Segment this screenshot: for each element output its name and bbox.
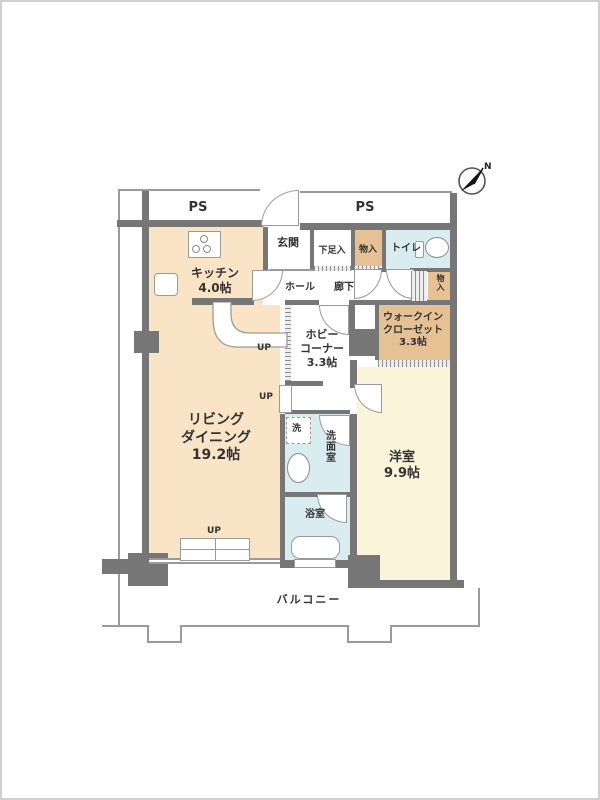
wall-ps-divider [142,191,149,227]
step-curve [205,302,289,352]
bifold-door-storage-side [411,271,427,301]
walk-in-closet-label: ウォークイン クローゼット 3.3帖 [383,312,443,350]
ps-right-label: PS [356,200,375,216]
living-dining-label: リビング ダイニング 19.2帖 [181,412,251,465]
wall-shoe-storage-divider [351,229,355,270]
ld-size: 19.2帖 [192,447,241,463]
outline-top-left [118,189,260,191]
ld-name-2: ダイニング [181,430,251,446]
wic-sliding-bottom [378,360,450,367]
western-room-name: 洋室 [389,450,415,465]
wall-washroom-left [280,414,285,560]
railing-low-2 [347,641,392,643]
wall-entrance-right [310,227,314,270]
wall-top-left [117,220,263,227]
stove-burner-3 [203,245,211,253]
wall-top-right [300,223,457,230]
door-hall-kitchen [252,270,283,301]
hobby-name-2: コーナー [300,342,344,355]
balcony-label: バルコニー [277,593,342,607]
wall-wic-left [375,305,379,360]
wall-hobby-right [349,305,355,329]
stove-burner-1 [200,235,208,243]
toilet-bowl [425,237,449,258]
bathroom-label: 浴室 [305,509,325,522]
railing-drop-2r [390,625,392,643]
hall-label: ホール [285,282,315,295]
wall-washroom-top [285,410,350,414]
wall-storage-toilet-divider [382,229,386,270]
storage-top-label: 物入 [359,245,377,256]
railing-seg-2 [180,625,349,627]
corridor-label: 廊下 [334,282,354,295]
shoe-closet-label: 下足入 [318,246,345,257]
wall-entrance-left [263,227,268,272]
kitchen-name: キッチン [191,266,239,280]
up-hall-label: UP [259,392,273,403]
western-room-size: 9.9帖 [384,466,420,481]
railing-drop-1r [180,625,182,643]
railing-seg-1 [102,625,149,627]
toilet-label: トイレ [391,243,421,256]
kitchen-size: 4.0帖 [198,281,231,295]
living-step [180,538,250,561]
storage-side-label: 物入 [435,274,445,292]
floorplan: N PS PS キッチン 4.0帖 玄関 下足入 物入 トイレ ホール 廊下 物… [0,0,600,800]
railing-right [478,588,480,627]
western-room-label: 洋室 9.9帖 [384,450,420,483]
shoe-closet-front [314,266,351,271]
railing-seg-3 [390,625,480,627]
ps-left-label: PS [189,200,208,216]
hall-step [279,385,292,413]
outline-top-right [300,191,452,193]
door-toilet [386,269,414,299]
wic-size: 3.3帖 [399,337,427,348]
living-step-tick [215,539,216,560]
hobby-size: 3.3帖 [307,356,338,369]
entrance-label: 玄関 [277,236,299,250]
wall-left-main [142,227,149,567]
wic-name-1: ウォークイン [383,312,443,323]
wall-hobby-wic-block [349,329,375,356]
wall-bedroom-left [350,414,357,560]
railing-low-1 [147,641,182,643]
kitchen-label: キッチン 4.0帖 [191,266,239,296]
bathtub [291,536,340,559]
refrigerator [154,273,178,296]
wall-corridor-bottom-right [349,300,450,305]
door-corridor [354,269,382,299]
wall-bedroom-bottom [348,580,464,588]
hobby-corner-label: ホビー コーナー 3.3帖 [300,328,344,369]
up-living-label: UP [207,526,221,537]
pillar-bottom-left-tab [102,559,128,574]
wic-name-2: クローゼット [383,325,443,336]
up-hobby-label: UP [257,343,271,354]
pillar-left [134,331,159,353]
door-entrance [261,190,299,226]
bath-window [294,559,336,568]
ld-name-1: リビング [188,412,244,428]
hobby-name-1: ホビー [306,328,339,341]
compass-icon: N [452,158,494,200]
stove-burner-2 [192,245,200,253]
laundry-label: 洗 [292,424,301,435]
compass-north-letter: N [484,162,492,172]
sink [287,453,310,483]
washroom-label: 洗面室 [322,430,335,463]
wall-right-main [450,193,457,588]
